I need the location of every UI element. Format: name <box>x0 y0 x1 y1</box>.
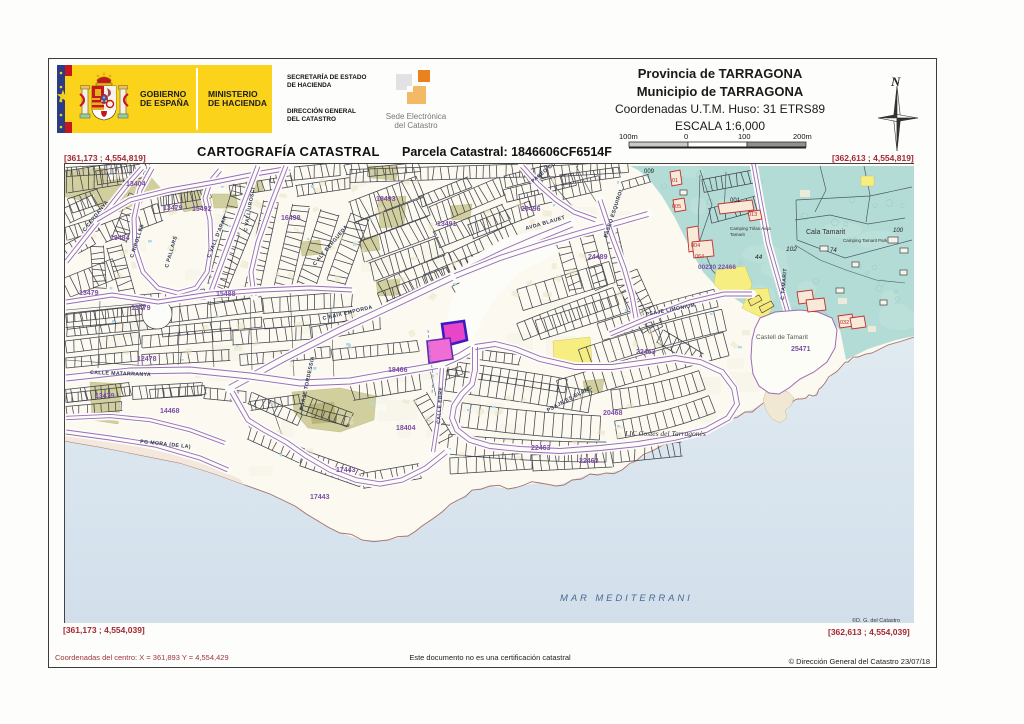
svg-text:13484: 13484 <box>110 235 130 242</box>
svg-text:100: 100 <box>893 228 904 234</box>
svg-text:009: 009 <box>644 169 655 175</box>
svg-text:Camping Trilas Avija: Camping Trilas Avija <box>730 226 771 231</box>
svg-text:Castell de Tamarit: Castell de Tamarit <box>756 334 808 341</box>
svg-text:Tamarit: Tamarit <box>730 232 746 237</box>
svg-text:013: 013 <box>748 212 757 218</box>
svg-text:©D. G. del Catastro: ©D. G. del Catastro <box>852 617 900 623</box>
svg-text:13479: 13479 <box>163 205 183 212</box>
svg-text:13479: 13479 <box>95 393 115 400</box>
svg-text:15488: 15488 <box>216 291 236 298</box>
svg-text:20496: 20496 <box>521 206 541 213</box>
svg-text:16498: 16498 <box>281 215 301 222</box>
svg-text:22463: 22463 <box>531 445 551 452</box>
svg-text:004: 004 <box>691 243 700 249</box>
svg-text:001: 001 <box>730 198 741 204</box>
svg-text:005: 005 <box>672 204 681 210</box>
svg-text:01: 01 <box>672 178 678 184</box>
svg-text:17443: 17443 <box>310 494 330 501</box>
svg-text:Camping Tamarit Park: Camping Tamarit Park <box>843 238 888 243</box>
svg-text:13479: 13479 <box>79 290 99 297</box>
svg-text:18493: 18493 <box>376 196 396 203</box>
svg-text:LIC Costes del Tarragonès: LIC Costes del Tarragonès <box>624 429 706 438</box>
svg-text:22463: 22463 <box>579 458 599 465</box>
svg-text:74: 74 <box>830 248 837 254</box>
svg-text:064: 064 <box>695 254 704 260</box>
svg-text:102: 102 <box>786 246 797 253</box>
svg-text:25471: 25471 <box>791 346 811 353</box>
svg-text:13404: 13404 <box>126 181 146 188</box>
svg-text:N: N <box>890 74 901 89</box>
svg-text:MAR MEDITERRANI: MAR MEDITERRANI <box>560 593 693 604</box>
svg-text:Cala Tamarit: Cala Tamarit <box>806 229 845 236</box>
svg-text:032: 032 <box>840 320 849 326</box>
svg-text:18466: 18466 <box>388 367 408 374</box>
svg-text:18404: 18404 <box>396 425 416 432</box>
svg-text:12478: 12478 <box>137 356 157 363</box>
svg-text:44: 44 <box>755 254 763 261</box>
svg-text:17443: 17443 <box>336 467 356 474</box>
svg-text:14468: 14468 <box>160 408 180 415</box>
svg-text:24489: 24489 <box>588 254 608 261</box>
svg-text:15492: 15492 <box>192 206 212 213</box>
svg-text:13479: 13479 <box>131 305 151 312</box>
svg-text:20468: 20468 <box>603 410 623 417</box>
svg-text:22463: 22463 <box>636 349 656 356</box>
svg-text:13491: 13491 <box>437 221 457 228</box>
svg-text:00230 22466: 00230 22466 <box>698 264 736 271</box>
